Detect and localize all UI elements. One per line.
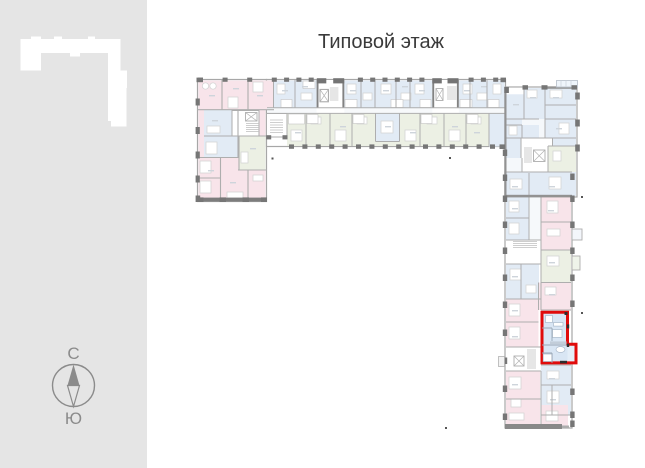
svg-text:Ю: Ю [65, 409, 82, 428]
svg-text:С: С [67, 344, 79, 363]
